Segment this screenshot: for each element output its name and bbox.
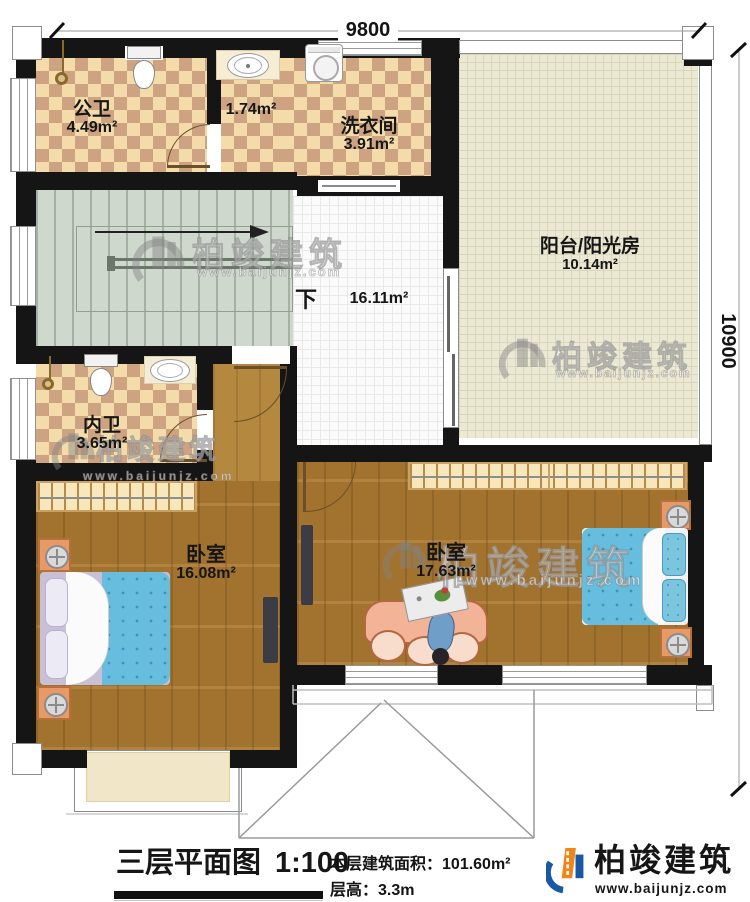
wall-middle	[280, 364, 297, 750]
person-figure-head	[432, 648, 449, 665]
watermark-site: www.baijunjz.com	[466, 572, 643, 589]
wardrobe-bedroom-right	[408, 462, 687, 490]
towel-ring-1	[55, 72, 68, 85]
plan-title-row: 三层平面图 1:100	[116, 848, 349, 878]
doorway-bedroom-left	[232, 346, 290, 364]
watermark-site: www.baijunjz.com	[83, 469, 235, 483]
dimension-right: 10900	[717, 301, 739, 381]
plan-title: 三层平面图	[116, 848, 261, 878]
corner-box-top-right	[682, 26, 714, 60]
room-area: 1.74m²	[218, 102, 284, 119]
room-area: 4.49m²	[50, 120, 134, 137]
watermark-logo-icon	[130, 226, 186, 288]
wardrobe-bedroom-left	[36, 481, 197, 512]
sliding-door-panel-2	[452, 354, 455, 426]
floor-area-label: 本层建筑面积：	[330, 856, 442, 873]
towel-ring-cord-1	[62, 40, 64, 74]
tv-bedroom-left	[263, 597, 278, 663]
wall-b2-bottom-2	[438, 665, 502, 685]
floor-height-row: 层高：3.3m	[330, 876, 414, 900]
window-stairs-left	[10, 226, 36, 306]
floor-area-row: 本层建筑面积：101.60m²	[330, 850, 511, 874]
wall-balcony-corner-column	[443, 428, 459, 445]
toilet-bowl-2	[90, 368, 112, 396]
wall-left-4	[16, 460, 36, 750]
wall-bedroom-right-top	[297, 445, 712, 462]
window-bedroom-right-1	[345, 665, 438, 685]
sliding-door-balcony	[443, 268, 459, 428]
watermark-site: www.baijunjz.com	[556, 366, 692, 380]
wall-b2-bottom-3	[647, 665, 712, 685]
dimension-top: 9800	[338, 19, 398, 41]
door-leaf-bedroom-right	[303, 462, 306, 512]
room-area: 17.63m²	[404, 564, 488, 581]
room-name: 卧室	[163, 545, 249, 566]
towel-ring-2	[42, 378, 54, 390]
room-label-wash-lobby: 1.74m²	[218, 102, 284, 119]
room-area: 3.91m²	[322, 137, 416, 154]
watermark-logo-icon	[497, 328, 547, 386]
balcony-wall-right	[699, 40, 712, 445]
stairs-down-label: 下	[292, 288, 320, 311]
wall-b1-bottom-2	[230, 750, 297, 768]
brand-name: 柏竣建筑	[594, 844, 734, 878]
nightstand-b2-bottom	[660, 627, 692, 658]
plan-title-underline-2	[114, 900, 323, 901]
corner-box-top-left	[12, 26, 42, 60]
toilet-tank-2	[84, 354, 118, 367]
sofa-cushion-1	[370, 630, 406, 662]
brand-logo-icon	[546, 842, 588, 896]
toilet-tank-1	[127, 46, 161, 59]
door-leaf-bedroom-left	[234, 366, 287, 369]
corner-box-bottom-left	[12, 743, 42, 775]
plan-title-underline	[114, 891, 323, 899]
room-name: 阳台/阳光房	[520, 237, 660, 257]
room-label-balcony: 阳台/阳光房 10.14m²	[520, 237, 660, 273]
room-label-bedroom-right: 卧室 17.63m²	[404, 543, 488, 581]
window-bedroom-right-2	[502, 665, 647, 685]
wall-b2-bottom-1	[297, 665, 345, 685]
wall-ensuite-right-top	[197, 364, 213, 410]
room-name: 内卫	[64, 416, 140, 436]
wall-left-2	[16, 190, 36, 226]
bay-window-sill	[86, 752, 230, 802]
room-name: 卧室	[404, 543, 488, 564]
floor-height-label: 层高：	[330, 882, 378, 899]
nightstand-b1-top	[38, 538, 71, 572]
nightstand-b1-bottom	[37, 686, 71, 720]
sink-ensuite-basin	[157, 363, 183, 378]
balcony-wall-top	[459, 40, 712, 54]
room-area: 10.14m²	[520, 257, 660, 273]
floor-plan: 柏竣建筑 www.baijunjz.com 柏竣建筑 www.baijunjz.…	[0, 0, 750, 902]
tv-bedroom-right	[301, 525, 313, 605]
room-label-bedroom-left: 卧室 16.08m²	[163, 545, 249, 583]
washing-machine	[305, 44, 343, 82]
wall-laundry-right	[431, 38, 459, 196]
bed-bedroom-left	[40, 572, 170, 685]
window-ensuite-left	[10, 378, 36, 460]
window-publicbath-left	[10, 78, 36, 172]
brand-website: www.baijunjz.com	[595, 882, 728, 896]
sink-lobby-drain	[246, 64, 250, 68]
room-label-laundry: 洗衣间 3.91m²	[322, 117, 416, 154]
laundry-pocket-door-line	[322, 185, 396, 187]
wall-publicbath-bottom	[16, 172, 297, 190]
sliding-door-panel-1	[447, 276, 450, 352]
room-label-ensuite: 内卫 3.65m²	[64, 416, 140, 453]
toilet-bowl-1	[133, 60, 155, 89]
room-area: 16.11m²	[344, 291, 414, 308]
floor-height-value: 3.3m	[378, 882, 414, 899]
room-name: 洗衣间	[322, 117, 416, 137]
door-leaf-public-bathroom	[167, 165, 210, 168]
watermark-site: www.baijunjz.com	[197, 264, 341, 279]
room-name: 公卫	[50, 100, 134, 120]
floor-area-value: 101.60m²	[442, 856, 511, 873]
corner-box-bottom-right	[696, 685, 714, 711]
wall-hall-right	[443, 196, 459, 268]
room-area: 3.65m²	[64, 436, 140, 453]
room-label-public-bathroom: 公卫 4.49m²	[50, 100, 134, 137]
room-area: 16.08m²	[163, 566, 249, 583]
stair-handrail-cap	[107, 256, 115, 271]
nightstand-b2-top	[660, 500, 691, 530]
towel-ring-cord-2	[49, 356, 51, 380]
room-label-hallway: 16.11m²	[344, 291, 414, 308]
